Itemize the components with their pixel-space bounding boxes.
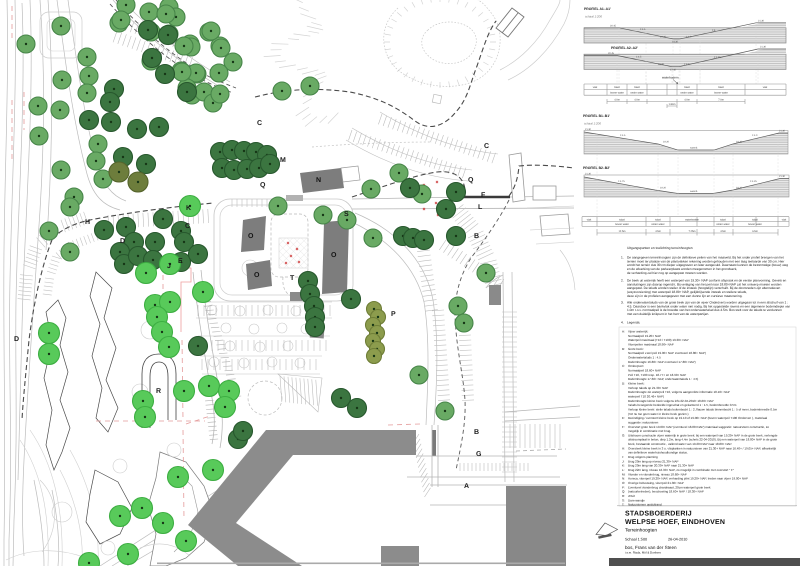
svg-text:12.5m: 12.5m [619,230,626,233]
svg-text:waterb.: waterb. [690,190,698,193]
svg-text:(natuurbetreden), beschoeiing: (natuurbetreden), beschoeiing 18.60+ NAP… [628,490,704,494]
svg-text:1:4.45: 1:4.45 [714,56,721,59]
svg-text:F:: F: [622,425,625,429]
svg-text:Uitgangspunten en toelichting: Uitgangspunten en toelichting terreinhoo… [627,246,693,250]
svg-text:1:4.25: 1:4.25 [750,180,757,183]
svg-text:19.20: 19.20 [736,187,743,190]
svg-text:18.30: 18.30 [672,41,679,44]
svg-text:boven water: boven water [610,91,624,94]
svg-text:waterpeil T10 20.46+ NAP): waterpeil T10 20.46+ NAP) [628,394,664,398]
svg-text:4.5m: 4.5m [655,230,661,233]
svg-text:Terreinhoogten: Terreinhoogten [625,528,657,534]
svg-text:7.25m: 7.25m [689,230,696,233]
svg-text:E:: E: [622,416,625,420]
svg-text:G:: G: [622,433,625,437]
svg-text:PROFIEL B1–B1': PROFIEL B1–B1' [583,114,610,118]
svg-text:talud: talud [684,86,690,89]
svg-text:1.84m: 1.84m [669,103,676,106]
svg-text:G: G [476,451,482,458]
svg-text:1:4.5: 1:4.5 [620,134,626,137]
svg-text:de verharding zal hier nog op: de verharding zal hier nog op aangepast … [627,271,708,275]
svg-text:talud: talud [752,218,758,221]
svg-text:talud: talud [619,218,625,221]
svg-text:19.20: 19.20 [660,187,667,190]
svg-text:talud: talud [634,86,640,89]
svg-text:STADSBOERDERIJ: STADSBOERDERIJ [625,511,692,518]
svg-text:met een duidelijk knikpunt in: met een duidelijk knikpunt in het hart v… [627,312,709,316]
svg-text:19.20: 19.20 [736,141,743,144]
svg-text:B: B [474,233,479,240]
svg-text:boven water: boven water [615,223,629,226]
svg-text:E: E [178,258,183,265]
svg-text:M: M [280,157,286,164]
svg-text:A: A [464,483,469,490]
svg-text:2.: 2. [621,279,624,283]
svg-text:van definitieve waterhuishoudk: van definitieve waterhuishoudkundige sta… [628,451,688,455]
svg-text:7.0m: 7.0m [718,99,724,102]
svg-text:1:4.75: 1:4.75 [618,180,625,183]
svg-text:talud: talud [718,86,724,89]
svg-text:4.0m: 4.0m [614,99,620,102]
svg-text:F: F [481,192,486,199]
svg-text:4.5m: 4.5m [720,230,726,233]
svg-text:C:: C: [622,364,625,368]
svg-text:B:: B: [622,347,625,351]
svg-text:Overige bebouwing, vloerpeil: Overige bebouwing, vloerpeil 21.30+ NAP [628,481,684,485]
svg-text:21.30: 21.30 [779,130,786,133]
svg-text:Q: Q [260,182,266,189]
svg-text:vlak: vlak [593,86,598,89]
svg-text:Omloopven:: Omloopven: [628,364,644,368]
svg-text:26-04-2010: 26-04-2010 [668,538,687,542]
svg-text:O: O [254,272,260,279]
svg-text:schaal 1:200: schaal 1:200 [584,122,601,126]
svg-text:L: L [478,204,483,211]
svg-text:1:4.5: 1:4.5 [640,28,646,31]
svg-text:boven water: boven water [714,91,728,94]
svg-text:R:: R: [622,494,625,498]
svg-text:21.30: 21.30 [760,46,767,49]
svg-text:H:: H: [622,446,625,450]
svg-text:T:: T: [622,503,625,507]
svg-text:4.: 4. [621,321,624,325]
svg-text:talud: talud [720,218,726,221]
svg-text:deze zijn in de profielen aang: deze zijn in de profielen aangegeven met… [627,294,742,298]
svg-text:C: C [185,223,190,230]
svg-text:Q: Q [468,177,474,184]
svg-text:PROFIEL A2–A2': PROFIEL A2–A2' [611,46,638,50]
svg-text:21.30: 21.30 [758,20,765,23]
svg-text:C: C [484,143,489,150]
svg-text:waterb.: waterb. [690,147,698,150]
svg-text:PROFIEL A1–A1': PROFIEL A1–A1' [584,7,611,11]
svg-text:Normaalpeil v.wel peil 19.00: Normaalpeil v.wel peil 19.00+ NAP eventu… [628,351,706,355]
svg-text:1:4.0: 1:4.0 [686,36,692,39]
svg-text:4.0m: 4.0m [684,99,690,102]
svg-text:onder water: onder water [651,223,664,226]
svg-text:C: C [257,120,262,127]
svg-text:19.20: 19.20 [660,36,667,39]
svg-text:20.45: 20.45 [610,25,617,28]
svg-text:1.: 1. [621,256,624,260]
svg-text:K:: K: [622,464,625,468]
svg-text:onder water: onder water [716,223,729,226]
svg-text:Verloop kleine beek: steile ta: Verloop kleine beek: steile taluds buite… [628,407,778,411]
svg-text:1:4.0: 1:4.0 [684,63,690,66]
svg-text:B: B [474,429,479,436]
svg-text:N: N [316,177,321,184]
svg-text:vlak: vlak [587,218,592,221]
svg-text:H: H [85,219,90,226]
svg-text:J: J [167,263,171,270]
svg-text:R: R [156,388,161,395]
svg-text:waterbodem: waterbodem [662,76,679,80]
svg-text:D: D [14,336,19,343]
svg-text:schaal 1:200: schaal 1:200 [585,15,602,19]
svg-text:Schaal 1:500: Schaal 1:500 [625,538,647,542]
svg-text:O: O [248,233,254,240]
svg-text:21.30: 21.30 [779,175,786,178]
svg-text:suggestie: natuursteen: suggestie: natuursteen [628,420,659,424]
svg-text:onder water: onder water [630,91,643,94]
svg-text:i.s.m. Riada, Möl & Donkers: i.s.m. Riada, Möl & Donkers [625,551,661,555]
svg-text:talud: talud [614,86,620,89]
svg-text:Natuurstenen opsluitrand: Natuurstenen opsluitrand [628,503,662,507]
svg-text:T: T [290,275,295,282]
svg-text:D: D [120,238,125,245]
svg-text:waterbodem: waterbodem [685,218,699,221]
svg-text:Normaalpeil 19.20+ NAP: Normaalpeil 19.20+ NAP [628,334,661,338]
svg-text:onder water: onder water [680,91,693,94]
svg-text:19.20: 19.20 [663,141,670,144]
svg-text:21.30: 21.30 [585,128,592,131]
svg-text:21.30: 21.30 [585,173,592,176]
svg-text:4.0m: 4.0m [634,99,640,102]
svg-text:WELPSE HOEF, EINDHOVEN: WELPSE HOEF, EINDHOVEN [625,519,725,526]
svg-text:O: O [331,252,337,259]
svg-text:Bodemhoogte 17.60+ NAP, onder: Bodemhoogte 17.60+ NAP, onderwatertaluds… [628,377,698,381]
svg-text:20.45: 20.45 [608,52,615,55]
svg-text:O:: O: [622,481,625,485]
svg-text:D:: D: [622,382,625,386]
svg-text:boven water: boven water [748,223,762,226]
svg-text:PROFIEL B2–B2': PROFIEL B2–B2' [583,166,610,170]
svg-text:bos, Frans van der Steen: bos, Frans van der Steen [625,545,677,550]
svg-text:P: P [391,311,396,318]
svg-text:19.20: 19.20 [658,63,665,66]
svg-text:3.: 3. [621,301,624,305]
svg-text:1:4.0: 1:4.0 [752,134,758,137]
svg-text:S: S [344,211,349,218]
svg-text:6.5m: 6.5m [752,230,758,233]
svg-text:1:4.5: 1:4.5 [636,56,642,59]
svg-text:vRuit: vRuit [628,494,635,498]
svg-text:Brug 20m lang van 20.30+ NAP: Brug 20m lang van 20.30+ NAP naar 21.30+… [628,464,694,468]
svg-text:Legenda:: Legenda: [627,321,640,325]
svg-text:A:: A: [622,330,625,334]
svg-text:talud: talud [655,218,661,221]
svg-text:vlak: vlak [782,218,787,221]
svg-text:vlak: vlak [763,86,768,89]
svg-text:K: K [186,205,191,212]
svg-text:17.40: 17.40 [670,69,677,72]
svg-text:uitstroomplaat in beton, diep: uitstroomplaat in beton, diep 1.2m, lang… [628,438,777,442]
